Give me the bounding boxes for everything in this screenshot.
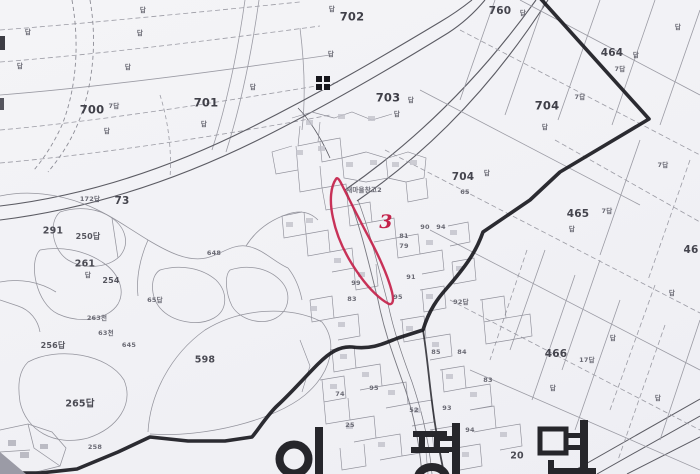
control-point-marker	[316, 76, 330, 90]
parcel-label: 답	[610, 335, 616, 342]
parcel-label: 20	[510, 451, 524, 461]
parcel-label: 7답	[658, 162, 669, 169]
highlighted-parcel-number: 3	[379, 211, 392, 233]
parcel-label: 83	[347, 296, 356, 303]
parcel-label: 답	[25, 29, 31, 36]
region-name-text	[280, 420, 597, 474]
parcel-label: 250답	[76, 233, 101, 241]
parcel-label: 74	[335, 391, 344, 398]
parcel-label: 답	[250, 84, 256, 91]
parcel-label: 99	[351, 280, 360, 287]
parcel-label: 94	[465, 427, 474, 434]
parcel-label: 답	[201, 121, 207, 128]
parcel-label: 258	[88, 444, 102, 451]
parcel-label: 701	[194, 97, 219, 109]
parcel-label: 95	[393, 294, 402, 301]
parcel-label: 265답	[65, 399, 94, 409]
parcel-label: 73	[114, 196, 129, 207]
parcel-label: 90	[420, 224, 429, 231]
stream-lines	[34, 0, 94, 172]
parcel-label: 답	[394, 111, 400, 118]
map-linework	[0, 0, 700, 474]
parcel-label: 172답	[80, 196, 100, 203]
parcel-label: 25	[345, 422, 354, 429]
parcel-label: 84	[457, 349, 466, 356]
parcel-label: 답	[542, 124, 548, 131]
parcel-label: 65답	[147, 297, 163, 304]
parcel-label: 답	[633, 52, 639, 59]
field-lines-northwest	[0, 0, 340, 178]
parcel-label: 81	[399, 233, 408, 240]
parcel-label: 648	[207, 250, 221, 257]
parcel-label: 464	[601, 48, 624, 59]
parcel-label: 답	[140, 7, 146, 14]
parcel-label: 256답	[41, 342, 66, 350]
parcel-label: 598	[195, 355, 215, 365]
parcel-label: 새마을창고2	[346, 187, 382, 194]
parcel-label: 466	[545, 349, 568, 360]
parcel-label: 답	[550, 385, 556, 392]
road-lines	[0, 0, 700, 474]
parcel-label: 702	[340, 11, 365, 23]
parcel-label: 254	[102, 277, 119, 285]
parcel-label: 645	[122, 342, 136, 349]
parcel-label: 답	[569, 226, 575, 233]
parcel-label: 465	[567, 209, 590, 220]
parcel-label: 답	[484, 170, 490, 177]
parcel-label: 답	[669, 290, 675, 297]
parcel-label: 답	[104, 128, 110, 135]
parcel-label: 답	[329, 6, 335, 13]
parcel-label: 95	[369, 385, 378, 392]
parcel-label: 63천	[98, 330, 114, 337]
map-scan-layer: 702760답464답7답703답답7047답답704답654657답답4646…	[0, 0, 700, 474]
parcel-label: 704	[452, 172, 475, 183]
parcel-label: 답	[655, 395, 661, 402]
parcel-label: 답	[675, 24, 681, 31]
parcel-label: 703	[376, 92, 401, 104]
cadastral-map: 702760답464답7답703답답7047답답704답654657답답4646…	[0, 0, 700, 474]
parcel-label: 83	[483, 377, 492, 384]
parcel-label: 7답	[602, 208, 613, 215]
parcel-label: 65	[460, 189, 469, 196]
region-name-char-1	[280, 427, 324, 474]
parcel-label: 85	[431, 349, 440, 356]
parcel-label: 17답	[579, 357, 595, 364]
parcel-label: 79	[399, 243, 408, 250]
parcel-label: 52	[409, 407, 418, 414]
parcel-label: 704	[535, 100, 560, 112]
parcel-label: 46	[683, 245, 698, 256]
parcel-label: 답	[125, 64, 131, 71]
parcel-label: 7답	[575, 94, 586, 101]
parcel-label: 700	[80, 104, 105, 116]
parcel-label: 답	[137, 30, 143, 37]
parcel-label: 답	[328, 51, 334, 58]
parcel-label: 93	[442, 405, 451, 412]
parcel-label: 261	[75, 259, 95, 269]
region-name-char-3	[540, 420, 596, 474]
parcel-label: 91	[406, 274, 415, 281]
parcel-label: 760	[489, 6, 512, 17]
parcel-label: 답	[85, 272, 91, 279]
parcel-label: 94	[436, 224, 445, 231]
parcel-label: 7답	[615, 66, 626, 73]
parcel-label: 92답	[453, 299, 469, 306]
parcel-label: 답	[17, 63, 23, 70]
parcel-label: 답	[520, 10, 526, 17]
parcel-label: 7답	[109, 103, 120, 110]
parcel-label: 263천	[87, 315, 107, 322]
parcel-label: 답	[408, 97, 414, 104]
parcel-label: 291	[43, 226, 63, 236]
